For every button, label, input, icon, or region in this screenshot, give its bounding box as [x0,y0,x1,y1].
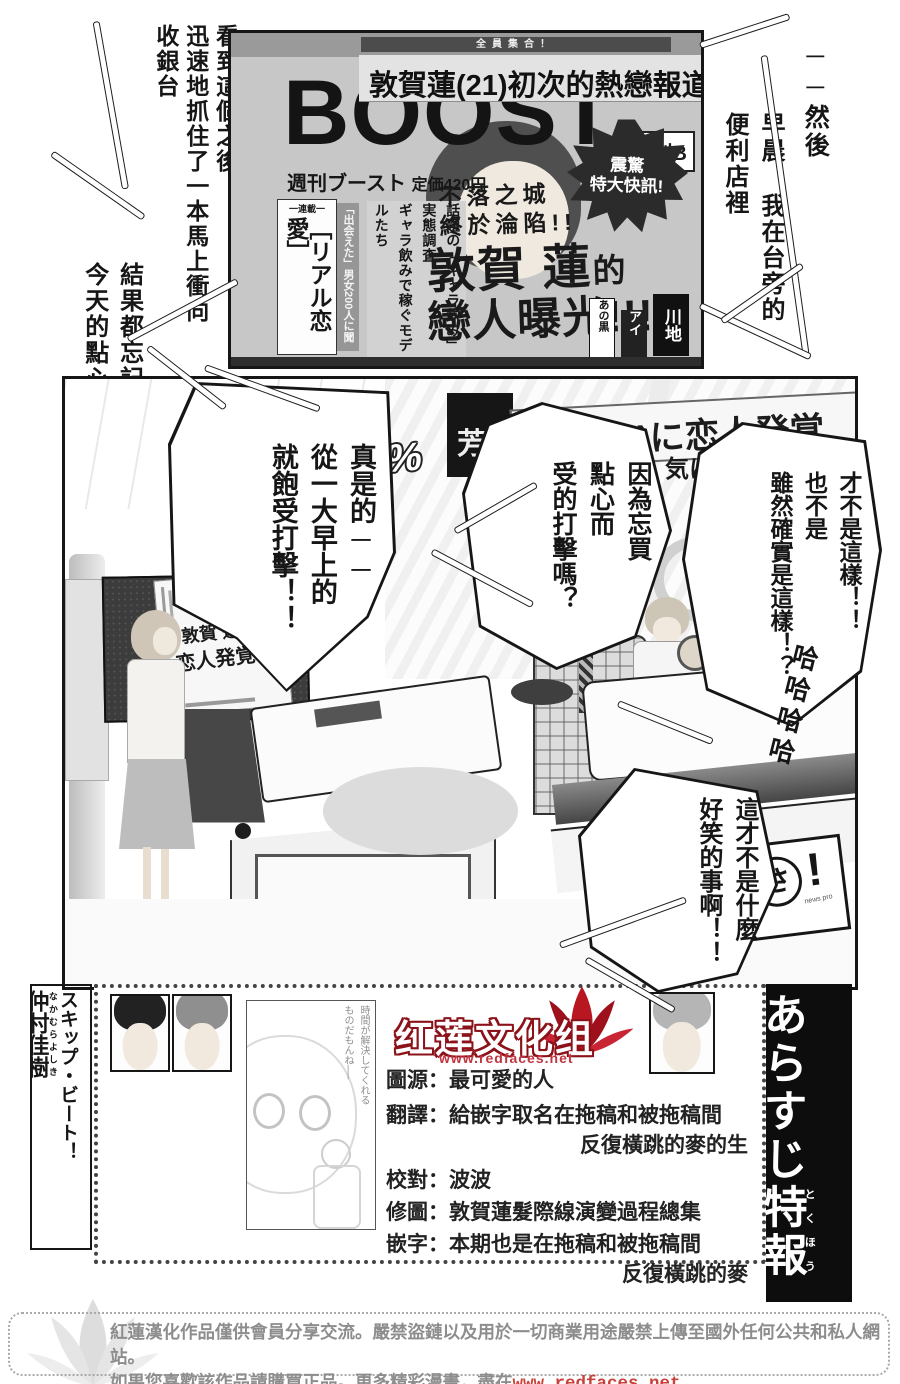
footer-link[interactable]: www.redfaces.net [513,1374,681,1384]
sketch-line-5 [699,13,791,49]
credit-line-proofread: 校對：波波 [386,1164,748,1194]
series-title-text: スキップ・ビート！仲村佳樹なかむらよしき [30,990,92,1248]
sketch-eye-left [253,1093,285,1129]
portrait-ren [110,994,170,1072]
footer-line2-prefix: 如果您喜歡該作品請購買正品。更多精彩漫畫，盡在 [110,1372,513,1384]
credit-line-source: 圖源：最可愛的人 [386,1064,748,1094]
serial-strip: 一連載一 ［リアル恋愛］ [277,199,337,355]
synopsis-text-2: 特報 [757,1184,806,1280]
cover-box-ai: アイ [621,310,647,358]
manga-page: ──然後 早晨 我在台旁的 便利店裡 看到這個之後 迅速地抓住了一本馬上衝向 收… [0,0,900,1384]
sketch-eye-right [299,1095,331,1131]
tv-stand-wheel2 [235,823,251,839]
feature-side-strip: 「出会えた」男女200人に聞く [337,203,359,351]
sketch-small-figure-body [313,1165,361,1229]
sketch-line-2 [50,151,146,221]
bubble-shock-text: 真是的── 從一大早上的 就飽受打擊！！ [184,402,380,672]
footer-text: 紅蓮漢化作品僅供會員分享交流。嚴禁盜鏈以及用於一切商業用途嚴禁上傳至國外任何公共… [110,1320,882,1384]
footer-line1: 紅蓮漢化作品僅供會員分享交流。嚴禁盜鏈以及用於一切商業用途嚴禁上傳至國外任何公共… [110,1320,882,1370]
starburst-text: 震驚 特大快訊! [589,154,664,197]
author-furigana: なかむらよしき [48,990,58,1078]
portrait-sho [172,994,232,1072]
serial-tag: 一連載一 [278,202,336,215]
bubble-notfunny-text: 這才不是什麼 好笑的事啊！！ [594,784,762,977]
cover-box-kawachi: 川地 [653,294,689,356]
credit-line-typeset2: 反復橫跳的麥 [386,1258,748,1288]
synopsis-bar: あらすじ特報とくほう [766,984,852,1302]
sketch-line-1 [93,21,129,190]
magazine-issue: 週刊ブースト [287,173,406,195]
magazine-headline-band: 敦賀蓮(21)初次的熱戀報道 [359,55,701,102]
series-title-box: スキップ・ビート！仲村佳樹なかむらよしき [30,984,92,1250]
narration-saw: 看到這個之後 迅速地抓住了一本馬上衝向 收銀台 [150,24,240,324]
credit-line-translator: 翻譯：給嵌字取名在拖稿和被拖稿間 [386,1099,748,1129]
cover-box-anokuro: あの黒 [589,298,615,358]
serial-title: ［リアル恋愛］ [284,217,330,342]
poster-bar3 [185,697,255,707]
credits-box: 時間が解決してくれる ものだもんね── 红莲文化组 www.redfaces.n… [94,984,766,1264]
shrub-left [511,679,573,705]
bubble-ask: 因為忘買 點心而 受的打擊嗎？ [462,402,672,670]
floor-rug [323,767,518,855]
credit-lines: 圖源：最可愛的人 翻譯：給嵌字取名在拖稿和被拖稿間 反復橫跳的麥的生 校對：波波… [386,1064,748,1288]
synopsis-text-1: あらすじ [757,992,806,1184]
author-name: 仲村佳樹 [30,990,49,1078]
woman-left-skirt [119,759,195,849]
bubble-ask-text: 因為忘買 點心而 受的打擊嗎？ [478,418,656,654]
magazine-bottom-band [231,357,701,366]
panel-magazine: 全員集合！ BOOST 敦賀蓮(21)初次的熱戀報道 週刊ブースト 定価420円… [228,30,704,369]
inset-art-panel: 時間が解決してくれる ものだもんね── [246,1000,376,1230]
synopsis-ruby: 特報とくほう [757,1184,806,1280]
asa-small-text: news pro [804,893,833,905]
asa-bang: ! [803,841,825,896]
magazine-headline: 敦賀蓮(21)初次的熱戀報道 [359,55,701,104]
footer-box: 紅蓮漢化作品僅供會員分享交流。嚴禁盜鏈以及用於一切商業用途嚴禁上傳至國外任何公共… [8,1312,890,1376]
portrait-sho-face [185,1023,220,1070]
magazine-top-strip-text: 全員集合！ [361,37,671,52]
synopsis-bar-text: あらすじ特報とくほう [759,992,860,1302]
series-title: スキップ・ビート！ [57,990,78,1161]
narration-then: ──然後 [797,42,833,160]
synopsis-furigana: とくほう [803,1184,815,1280]
credit-line-typeset: 嵌字：本期也是在拖稿和被拖稿間 [386,1228,748,1258]
portrait-ren-face [123,1023,158,1070]
credit-line-translator2: 反復橫跳的麥的生 [386,1129,748,1159]
credit-line-redraw: 修圖：敦賀蓮髮際線演變過程總集 [386,1196,748,1226]
author-ruby: 仲村佳樹なかむらよしき [30,990,49,1078]
inset-quote: 時間が解決してくれる ものだもんね── [339,1005,371,1105]
footer-line2: 如果您喜歡該作品請購買正品。更多精彩漫畫，盡在www.redfaces.net [110,1370,882,1384]
bubble-notfunny: 這才不是什麼 好笑的事啊！！ [578,768,778,993]
bubble-shock: 真是的── 從一大早上的 就飽受打擊！！ [168,382,396,692]
magazine-top-strip: 全員集合！ [231,33,701,57]
